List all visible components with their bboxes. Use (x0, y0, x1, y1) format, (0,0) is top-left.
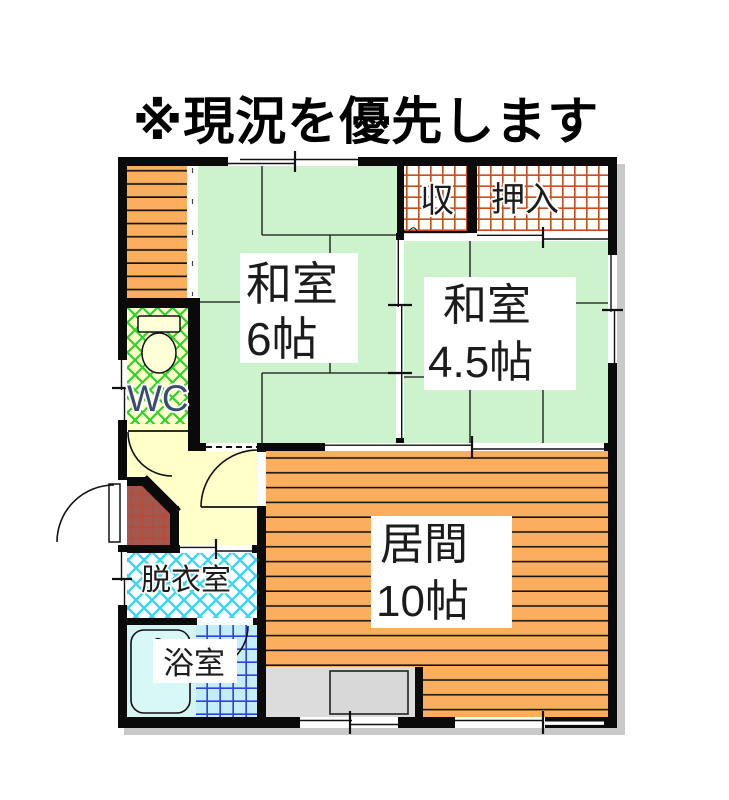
wall-shadow-right (617, 164, 625, 734)
entrance-door (57, 480, 127, 545)
wall-shadow-bottom (124, 728, 625, 735)
dressing-label: 脱衣室 (141, 564, 231, 597)
washitsu45-label-line1: 和室 (443, 281, 531, 330)
washitsu6-label-line1: 和室 (246, 258, 338, 310)
floor-plan-page: ※現況を優先します (0, 0, 729, 800)
stove-icon (330, 671, 408, 714)
storage-label: 収 (420, 182, 454, 220)
bath-label: 浴室 (163, 646, 225, 681)
living-label-line2: 10帖 (376, 577, 469, 626)
toilet-label: WC (127, 378, 189, 419)
toilet-icon (138, 316, 180, 373)
floor-plan: ※現況を優先します (0, 0, 729, 800)
washitsu6-label-line2: 6帖 (246, 313, 318, 365)
living-label-line1: 居間 (380, 520, 468, 569)
page-title: ※現況を優先します (133, 93, 600, 150)
closet-label: 押入 (491, 181, 559, 219)
kitchen-counter (266, 667, 415, 717)
stairs (127, 166, 198, 298)
washitsu45-label-line2: 4.5帖 (428, 338, 533, 387)
